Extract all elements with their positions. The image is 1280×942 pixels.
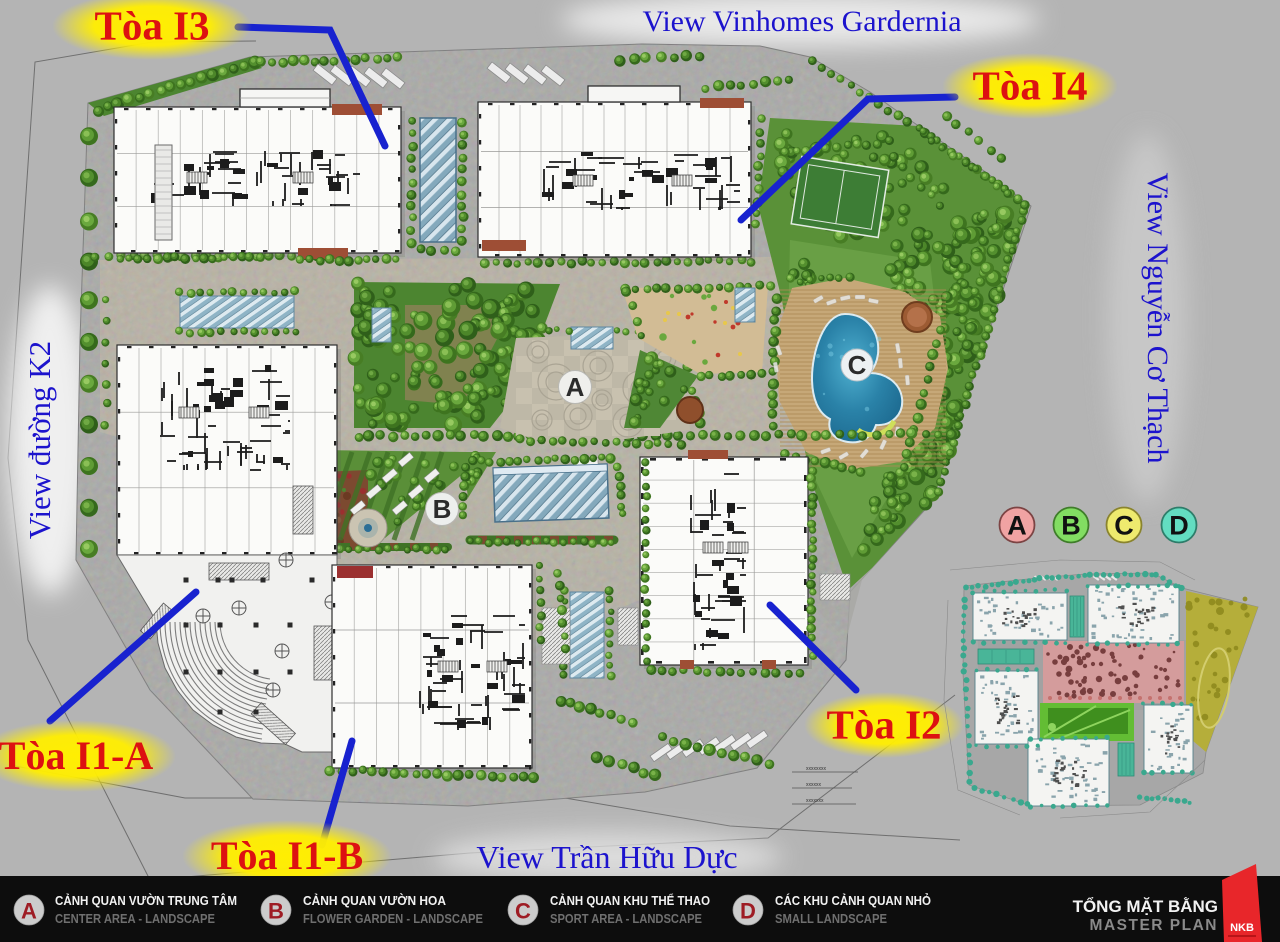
svg-text:Tòa I3: Tòa I3: [94, 3, 209, 49]
svg-text:B: B: [433, 494, 452, 524]
svg-text:CENTER AREA - LANDSCAPE: CENTER AREA - LANDSCAPE: [55, 911, 215, 926]
svg-text:NKB: NKB: [1230, 922, 1254, 934]
svg-text:B: B: [268, 899, 284, 924]
svg-text:A: A: [1007, 511, 1027, 541]
svg-text:View Nguyễn Cơ Thạch: View Nguyễn Cơ Thạch: [1141, 173, 1174, 464]
svg-text:View Vinhomes Gardernia: View Vinhomes Gardernia: [642, 5, 961, 38]
svg-text:View Trần Hữu Dực: View Trần Hữu Dực: [476, 839, 737, 875]
svg-text:SPORT AREA - LANDSCAPE: SPORT AREA - LANDSCAPE: [550, 911, 702, 926]
svg-text:C: C: [848, 350, 867, 380]
svg-text:C: C: [1114, 511, 1134, 541]
svg-text:A: A: [566, 372, 585, 402]
svg-text:Tòa I1-B: Tòa I1-B: [211, 833, 363, 878]
svg-text:Tòa I1-A: Tòa I1-A: [0, 733, 153, 778]
svg-text:B: B: [1061, 511, 1081, 541]
svg-text:CẢNH QUAN VƯỜN TRUNG TÂM: CẢNH QUAN VƯỜN TRUNG TÂM: [55, 893, 237, 908]
svg-text:CẢNH QUAN KHU THỂ THAO: CẢNH QUAN KHU THỂ THAO: [550, 893, 710, 908]
svg-text:SMALL LANDSCAPE: SMALL LANDSCAPE: [775, 911, 887, 926]
svg-text:Tòa I2: Tòa I2: [826, 702, 941, 748]
svg-text:TỔNG MẶT BẰNG: TỔNG MẶT BẰNG: [1073, 897, 1218, 916]
svg-text:xxxxxxxx: xxxxxxxx: [806, 766, 827, 772]
svg-text:FLOWER GARDEN - LANDSCAPE: FLOWER GARDEN - LANDSCAPE: [303, 911, 483, 926]
svg-text:xxxxxxx: xxxxxxx: [806, 798, 824, 804]
svg-text:MASTER PLAN: MASTER PLAN: [1090, 917, 1218, 934]
svg-text:D: D: [1169, 511, 1189, 541]
svg-text:CẢNH QUAN VƯỜN HOA: CẢNH QUAN VƯỜN HOA: [303, 893, 447, 908]
svg-text:xxxxxx: xxxxxx: [806, 782, 822, 788]
svg-text:A: A: [21, 899, 37, 924]
svg-text:C: C: [515, 899, 531, 924]
svg-text:View đường K2: View đường K2: [22, 341, 57, 539]
svg-text:Tòa I4: Tòa I4: [972, 63, 1087, 109]
svg-text:CÁC KHU CẢNH QUAN NHỎ: CÁC KHU CẢNH QUAN NHỎ: [775, 893, 931, 908]
svg-text:D: D: [740, 899, 756, 924]
